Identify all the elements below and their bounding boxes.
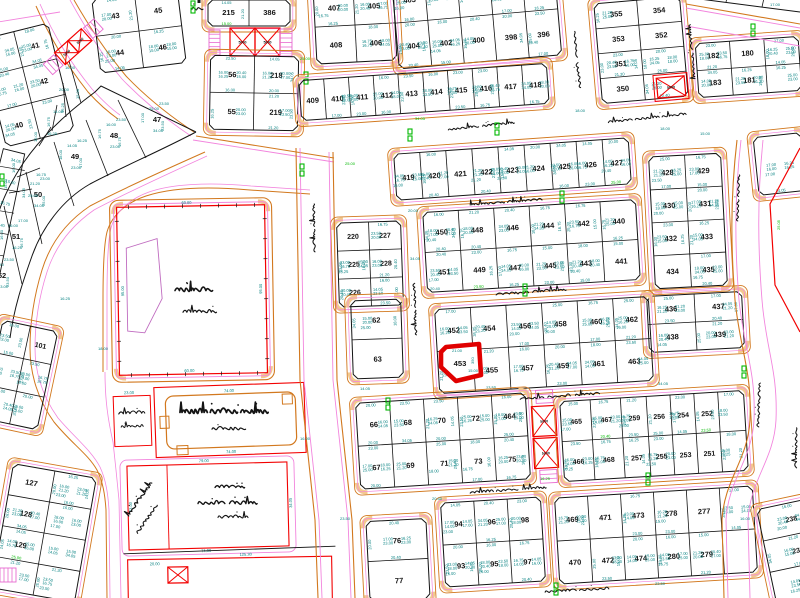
svg-text:16.25: 16.25 — [380, 466, 391, 472]
svg-text:17.00: 17.00 — [140, 112, 145, 123]
svg-text:16.75: 16.75 — [557, 221, 563, 232]
svg-text:34.05: 34.05 — [471, 326, 477, 337]
svg-text:20.00: 20.00 — [269, 88, 280, 93]
svg-text:23.50: 23.50 — [422, 91, 433, 97]
svg-text:23.50: 23.50 — [403, 73, 414, 79]
svg-text:15.00: 15.00 — [700, 131, 711, 136]
svg-text:14.05: 14.05 — [534, 225, 545, 231]
svg-text:21.20: 21.20 — [475, 328, 486, 334]
svg-text:23.50: 23.50 — [116, 117, 127, 122]
svg-text:20.40: 20.40 — [426, 237, 437, 243]
svg-text:23.00: 23.00 — [706, 334, 717, 340]
svg-text:16.75: 16.75 — [717, 54, 728, 60]
svg-text:14.05: 14.05 — [594, 457, 600, 468]
svg-text:16.75: 16.75 — [514, 367, 525, 373]
svg-text:74.00: 74.00 — [226, 449, 237, 454]
svg-text:16.75: 16.75 — [598, 399, 609, 405]
svg-text:18.00: 18.00 — [470, 439, 481, 445]
svg-text:25.00: 25.00 — [611, 179, 622, 185]
svg-text:34.05: 34.05 — [707, 69, 718, 75]
svg-text:23.00: 23.00 — [236, 111, 247, 116]
svg-text:25.00: 25.00 — [582, 321, 593, 327]
svg-text:16.25: 16.25 — [338, 269, 349, 274]
svg-text:20.40: 20.40 — [528, 39, 539, 45]
svg-text:409: 409 — [306, 96, 319, 106]
svg-text:421: 421 — [454, 169, 467, 179]
svg-text:21.20: 21.20 — [490, 167, 496, 178]
svg-text:17.00: 17.00 — [770, 2, 781, 7]
svg-text:20.00: 20.00 — [150, 561, 161, 566]
svg-text:16.00: 16.00 — [434, 211, 445, 217]
svg-text:21.20: 21.20 — [558, 519, 569, 525]
svg-text:23.50: 23.50 — [646, 461, 657, 467]
svg-text:16.25: 16.25 — [545, 363, 551, 374]
svg-text:14.05: 14.05 — [514, 561, 525, 567]
svg-text:14.05: 14.05 — [677, 429, 688, 435]
svg-text:34.05: 34.05 — [21, 187, 26, 198]
svg-text:20.00: 20.00 — [408, 208, 419, 213]
svg-text:180: 180 — [741, 48, 754, 58]
svg-text:20.40: 20.40 — [590, 262, 601, 268]
svg-text:18.00: 18.00 — [361, 260, 366, 271]
svg-text:23.50: 23.50 — [458, 329, 469, 335]
svg-text:23.00: 23.00 — [71, 165, 82, 170]
svg-text:23.50: 23.50 — [373, 291, 384, 296]
svg-text:16.75: 16.75 — [97, 128, 102, 139]
svg-text:21.20: 21.20 — [396, 465, 407, 471]
svg-text:23.00: 23.00 — [401, 539, 412, 545]
svg-text:16.00: 16.00 — [0, 229, 4, 240]
svg-text:18.00: 18.00 — [590, 342, 601, 348]
svg-text:16.25: 16.25 — [488, 265, 494, 276]
svg-text:18.00: 18.00 — [667, 58, 678, 64]
svg-text:23.50: 23.50 — [433, 398, 444, 404]
svg-text:25.00: 25.00 — [638, 360, 649, 366]
svg-text:16.00: 16.00 — [621, 161, 632, 167]
svg-text:5000: 5000 — [667, 85, 675, 90]
svg-text:15.00: 15.00 — [568, 401, 579, 407]
svg-text:16.75: 16.75 — [601, 439, 612, 445]
svg-text:25.00: 25.00 — [605, 221, 616, 227]
svg-text:16.25: 16.25 — [680, 234, 686, 245]
svg-text:17.00: 17.00 — [689, 170, 700, 176]
svg-text:14.05: 14.05 — [222, 0, 233, 5]
svg-text:398: 398 — [504, 32, 517, 42]
svg-text:16.25: 16.25 — [583, 460, 594, 466]
svg-text:23.50: 23.50 — [394, 422, 405, 428]
svg-text:20.40: 20.40 — [470, 16, 481, 22]
svg-text:14.05: 14.05 — [731, 525, 742, 531]
svg-text:449: 449 — [473, 265, 486, 275]
svg-text:21.20: 21.20 — [471, 177, 482, 183]
svg-text:23.50: 23.50 — [536, 265, 547, 271]
svg-text:16.75: 16.75 — [588, 300, 599, 306]
svg-text:20.40: 20.40 — [504, 437, 515, 443]
svg-text:23.50: 23.50 — [4, 257, 15, 262]
svg-text:17.00: 17.00 — [496, 520, 507, 526]
svg-text:5000: 5000 — [239, 41, 247, 45]
svg-text:23.00: 23.00 — [124, 390, 135, 395]
svg-text:23.00: 23.00 — [721, 449, 727, 460]
svg-text:25.05: 25.05 — [776, 219, 781, 230]
svg-text:20.00: 20.00 — [653, 210, 664, 216]
svg-text:20.40: 20.40 — [481, 188, 492, 194]
svg-text:16.25: 16.25 — [450, 41, 461, 47]
svg-text:34.05: 34.05 — [289, 71, 294, 82]
svg-text:23.50: 23.50 — [455, 104, 466, 110]
svg-text:16.25: 16.25 — [629, 437, 640, 443]
svg-text:21.20: 21.20 — [269, 93, 280, 98]
svg-text:18.00: 18.00 — [699, 55, 710, 61]
svg-text:408: 408 — [330, 40, 343, 50]
svg-text:434: 434 — [666, 267, 680, 277]
svg-text:23.00: 23.00 — [443, 529, 454, 535]
svg-text:20.00: 20.00 — [539, 83, 550, 89]
svg-text:20.00: 20.00 — [509, 331, 520, 337]
svg-text:16.00: 16.00 — [426, 151, 437, 157]
svg-text:20.00: 20.00 — [370, 483, 381, 489]
svg-text:16.75: 16.75 — [577, 164, 588, 170]
svg-text:23.50: 23.50 — [626, 340, 637, 346]
svg-text:34.05: 34.05 — [410, 256, 421, 261]
svg-text:23.50: 23.50 — [718, 411, 729, 417]
svg-text:16.25: 16.25 — [12, 245, 23, 250]
svg-text:23.50: 23.50 — [652, 177, 663, 183]
svg-text:34.05: 34.05 — [551, 164, 557, 175]
svg-text:98: 98 — [521, 515, 530, 524]
svg-text:23.50: 23.50 — [735, 80, 746, 86]
svg-text:14.05: 14.05 — [622, 513, 628, 524]
svg-text:23.00: 23.00 — [580, 514, 586, 525]
svg-text:21.20: 21.20 — [484, 348, 495, 354]
svg-text:354: 354 — [652, 5, 666, 15]
svg-text:17.00: 17.00 — [538, 51, 549, 57]
svg-text:23.50: 23.50 — [380, 300, 391, 305]
svg-text:34.05: 34.05 — [518, 32, 524, 43]
svg-text:16.25: 16.25 — [776, 65, 787, 71]
svg-text:15.00: 15.00 — [236, 74, 247, 79]
svg-text:21.20: 21.20 — [262, 74, 273, 79]
svg-text:18.00: 18.00 — [642, 58, 648, 69]
svg-text:18.00: 18.00 — [368, 24, 379, 30]
svg-text:20.00: 20.00 — [701, 82, 712, 88]
svg-text:25.00: 25.00 — [28, 193, 39, 198]
svg-text:20.00: 20.00 — [555, 344, 566, 350]
svg-text:17.00: 17.00 — [497, 265, 503, 276]
svg-text:15.00: 15.00 — [350, 94, 356, 105]
svg-text:14.05: 14.05 — [501, 267, 512, 273]
svg-text:23.50: 23.50 — [655, 581, 666, 586]
svg-text:353: 353 — [612, 34, 625, 44]
svg-text:25.00: 25.00 — [552, 302, 563, 308]
svg-text:14.05: 14.05 — [270, 56, 281, 61]
svg-text:23.00: 23.00 — [128, 501, 133, 512]
svg-text:18.00: 18.00 — [392, 315, 397, 326]
svg-text:21.20: 21.20 — [478, 521, 489, 527]
svg-text:16.75: 16.75 — [658, 561, 669, 567]
svg-text:16.00: 16.00 — [653, 236, 659, 247]
svg-text:16.25: 16.25 — [60, 296, 71, 301]
svg-text:34.05: 34.05 — [658, 381, 669, 386]
svg-text:23.50: 23.50 — [602, 576, 613, 582]
svg-text:25.00: 25.00 — [713, 268, 724, 274]
svg-text:16.00: 16.00 — [519, 266, 530, 272]
svg-text:14.05: 14.05 — [529, 324, 540, 330]
svg-text:21.20: 21.20 — [701, 569, 712, 575]
svg-text:16.00: 16.00 — [106, 122, 117, 127]
svg-text:16.75: 16.75 — [540, 205, 551, 211]
svg-text:25.00: 25.00 — [657, 68, 668, 74]
svg-text:16.25: 16.25 — [77, 138, 88, 143]
svg-text:18.00: 18.00 — [660, 126, 671, 131]
svg-text:34.05: 34.05 — [649, 60, 660, 66]
svg-text:34.05: 34.05 — [288, 497, 293, 508]
svg-text:63: 63 — [373, 354, 382, 363]
svg-text:17.00: 17.00 — [18, 218, 29, 223]
svg-text:16.00: 16.00 — [616, 324, 627, 330]
svg-text:16.75: 16.75 — [601, 219, 607, 230]
svg-text:17.00: 17.00 — [438, 174, 449, 180]
svg-text:17.00: 17.00 — [661, 184, 672, 190]
svg-text:16.25: 16.25 — [218, 74, 229, 79]
svg-text:16.75: 16.75 — [630, 493, 641, 499]
svg-text:23.00: 23.00 — [666, 455, 677, 461]
svg-text:25.00: 25.00 — [660, 156, 671, 162]
svg-text:23.50: 23.50 — [591, 417, 597, 428]
svg-text:20.40: 20.40 — [570, 268, 581, 274]
svg-text:21.20: 21.20 — [354, 3, 360, 14]
svg-text:14.05: 14.05 — [431, 48, 442, 54]
svg-text:20.00: 20.00 — [453, 544, 464, 550]
svg-text:23.00: 23.00 — [356, 111, 367, 117]
svg-text:453: 453 — [454, 359, 467, 368]
svg-text:21.20: 21.20 — [30, 181, 41, 186]
svg-text:21.20: 21.20 — [624, 455, 630, 466]
svg-text:14.05: 14.05 — [450, 502, 461, 508]
svg-text:20.40: 20.40 — [521, 576, 532, 582]
svg-text:23.50: 23.50 — [459, 416, 465, 427]
svg-text:16.25: 16.25 — [210, 108, 215, 119]
svg-text:25.00: 25.00 — [149, 106, 160, 111]
svg-text:256: 256 — [653, 413, 665, 421]
svg-text:16.75: 16.75 — [463, 466, 474, 472]
svg-text:21.20: 21.20 — [469, 209, 480, 215]
svg-text:21.20: 21.20 — [240, 8, 245, 19]
svg-text:17.00: 17.00 — [462, 522, 473, 528]
svg-text:471: 471 — [599, 513, 612, 523]
svg-text:23.00: 23.00 — [453, 69, 464, 75]
svg-text:470: 470 — [569, 558, 582, 568]
svg-text:23.00: 23.00 — [383, 540, 394, 546]
svg-text:20.40: 20.40 — [393, 258, 398, 269]
svg-text:16.00: 16.00 — [428, 71, 439, 77]
svg-text:20.00: 20.00 — [479, 569, 490, 575]
svg-text:25.00: 25.00 — [673, 204, 684, 210]
svg-text:20.40: 20.40 — [389, 520, 400, 526]
svg-text:16.75: 16.75 — [529, 99, 540, 105]
svg-text:16.00: 16.00 — [379, 278, 390, 283]
svg-text:73: 73 — [474, 457, 483, 466]
svg-text:20.00: 20.00 — [373, 95, 384, 101]
svg-text:25.00: 25.00 — [300, 56, 311, 61]
svg-text:34.05: 34.05 — [351, 318, 356, 329]
svg-text:16.00: 16.00 — [559, 183, 570, 189]
svg-text:16.75: 16.75 — [378, 222, 389, 227]
svg-text:23.00: 23.00 — [613, 52, 624, 58]
svg-text:20.00: 20.00 — [687, 201, 693, 212]
svg-text:20.40: 20.40 — [391, 555, 402, 561]
svg-text:15.00: 15.00 — [656, 518, 667, 524]
svg-text:5000: 5000 — [264, 41, 272, 45]
svg-text:23.50: 23.50 — [340, 516, 351, 521]
svg-text:21.20: 21.20 — [489, 84, 495, 95]
svg-text:16.75: 16.75 — [693, 274, 704, 280]
svg-text:23.50: 23.50 — [289, 108, 294, 119]
svg-text:21.20: 21.20 — [689, 234, 695, 245]
svg-text:21.20: 21.20 — [425, 418, 431, 429]
svg-text:16.25: 16.25 — [509, 282, 520, 288]
svg-text:350: 350 — [470, 357, 475, 364]
svg-text:25.00: 25.00 — [663, 295, 674, 301]
svg-text:23.00: 23.00 — [557, 380, 568, 386]
svg-text:386: 386 — [263, 8, 276, 17]
svg-text:23.00: 23.00 — [517, 498, 528, 504]
svg-text:23.00: 23.00 — [544, 279, 555, 285]
svg-text:25.00: 25.00 — [473, 86, 479, 97]
svg-text:21.20: 21.20 — [614, 71, 625, 77]
svg-text:16.75: 16.75 — [519, 540, 530, 546]
svg-text:15.00: 15.00 — [222, 21, 233, 26]
svg-text:20.00: 20.00 — [371, 235, 382, 240]
svg-text:15.00: 15.00 — [698, 532, 709, 538]
svg-text:16.75: 16.75 — [570, 223, 581, 229]
svg-text:17.00: 17.00 — [426, 0, 432, 6]
svg-text:23.50: 23.50 — [534, 10, 545, 16]
svg-text:23.50: 23.50 — [710, 409, 716, 420]
svg-text:23.00: 23.00 — [675, 307, 686, 313]
svg-text:25.00: 25.00 — [397, 44, 403, 55]
svg-text:16.25: 16.25 — [328, 21, 339, 27]
svg-text:18.00: 18.00 — [575, 108, 586, 113]
svg-text:34.05: 34.05 — [34, 203, 45, 208]
svg-text:20.40: 20.40 — [339, 289, 344, 300]
svg-text:16.00: 16.00 — [462, 38, 468, 49]
svg-text:16.00: 16.00 — [379, 75, 390, 81]
svg-text:20.40: 20.40 — [702, 281, 713, 287]
svg-text:21.20: 21.20 — [724, 333, 735, 339]
svg-text:441: 441 — [615, 256, 628, 266]
svg-text:16.00: 16.00 — [393, 182, 404, 188]
svg-text:34.05: 34.05 — [644, 83, 650, 94]
svg-text:17.00: 17.00 — [671, 412, 677, 423]
svg-text:23.00: 23.00 — [714, 199, 720, 210]
svg-text:17.00: 17.00 — [445, 308, 456, 314]
svg-text:23.50: 23.50 — [665, 318, 676, 324]
svg-text:14.05: 14.05 — [627, 558, 638, 564]
svg-text:21.20: 21.20 — [449, 87, 455, 98]
svg-text:25.00: 25.00 — [678, 555, 689, 561]
svg-text:45: 45 — [153, 6, 162, 16]
svg-text:23.50: 23.50 — [448, 270, 459, 276]
svg-text:16.25: 16.25 — [47, 131, 58, 136]
svg-text:21.20: 21.20 — [559, 260, 565, 271]
svg-text:25.00: 25.00 — [362, 467, 373, 473]
svg-text:20.00: 20.00 — [498, 459, 509, 465]
svg-text:20.40: 20.40 — [436, 251, 447, 257]
svg-text:23.50: 23.50 — [473, 284, 484, 290]
svg-text:21.20: 21.20 — [722, 305, 733, 311]
svg-text:18.00: 18.00 — [578, 243, 589, 249]
svg-text:16.25: 16.25 — [691, 203, 702, 209]
svg-text:20.00: 20.00 — [405, 22, 416, 28]
svg-text:25.00: 25.00 — [480, 417, 491, 423]
svg-text:23.00: 23.00 — [372, 263, 383, 268]
svg-text:16.75: 16.75 — [318, 13, 329, 19]
svg-text:14.05: 14.05 — [585, 363, 596, 369]
svg-text:16.00: 16.00 — [445, 571, 456, 577]
svg-text:14.05: 14.05 — [67, 143, 78, 148]
svg-text:20.40: 20.40 — [432, 496, 443, 501]
svg-text:60.00: 60.00 — [184, 368, 195, 373]
svg-text:16.00: 16.00 — [501, 394, 512, 400]
svg-text:23.00: 23.00 — [599, 62, 605, 73]
svg-text:16.00: 16.00 — [33, 131, 38, 142]
svg-text:16.00: 16.00 — [437, 19, 448, 25]
svg-text:21.20: 21.20 — [647, 413, 653, 424]
svg-text:20.00: 20.00 — [59, 87, 70, 92]
svg-text:20.00: 20.00 — [502, 13, 513, 19]
svg-text:16.00: 16.00 — [300, 436, 311, 441]
svg-text:14.05: 14.05 — [695, 411, 701, 422]
svg-text:16.00: 16.00 — [225, 87, 236, 92]
svg-text:20.40: 20.40 — [430, 286, 441, 291]
svg-text:20.00: 20.00 — [517, 411, 523, 422]
svg-text:16.25: 16.25 — [540, 476, 551, 481]
svg-text:20.00: 20.00 — [633, 536, 644, 542]
svg-text:25.00: 25.00 — [623, 298, 634, 304]
svg-text:16.00: 16.00 — [381, 109, 392, 115]
svg-text:16.00: 16.00 — [65, 65, 76, 70]
svg-text:23.50: 23.50 — [226, 56, 237, 61]
svg-text:14.05: 14.05 — [657, 342, 668, 348]
svg-text:23.00: 23.00 — [788, 76, 799, 82]
svg-text:25.00: 25.00 — [436, 441, 447, 447]
svg-text:20.00: 20.00 — [338, 7, 349, 13]
svg-text:95.00: 95.00 — [120, 285, 125, 296]
svg-text:25.00: 25.00 — [566, 221, 572, 232]
svg-text:15.00: 15.00 — [492, 414, 498, 425]
svg-text:220: 220 — [347, 234, 359, 241]
svg-text:21.20: 21.20 — [626, 397, 637, 403]
svg-text:277: 277 — [698, 507, 711, 517]
svg-text:25.00: 25.00 — [696, 332, 702, 343]
svg-text:20.00: 20.00 — [530, 144, 541, 150]
svg-text:69: 69 — [406, 461, 415, 470]
svg-text:5000: 5000 — [542, 451, 550, 455]
svg-text:20.00: 20.00 — [367, 539, 373, 550]
svg-text:20.40: 20.40 — [429, 192, 440, 198]
svg-text:34.05: 34.05 — [415, 116, 426, 121]
svg-text:16.75: 16.75 — [46, 116, 51, 127]
svg-text:23.00: 23.00 — [653, 436, 664, 442]
svg-text:14.05: 14.05 — [468, 561, 474, 572]
svg-text:16.00: 16.00 — [486, 542, 497, 548]
svg-text:16.75: 16.75 — [520, 454, 526, 465]
svg-text:20.00: 20.00 — [608, 139, 619, 145]
svg-text:18.00: 18.00 — [764, 48, 770, 59]
svg-text:34.05: 34.05 — [693, 236, 704, 242]
svg-text:62: 62 — [372, 315, 381, 324]
